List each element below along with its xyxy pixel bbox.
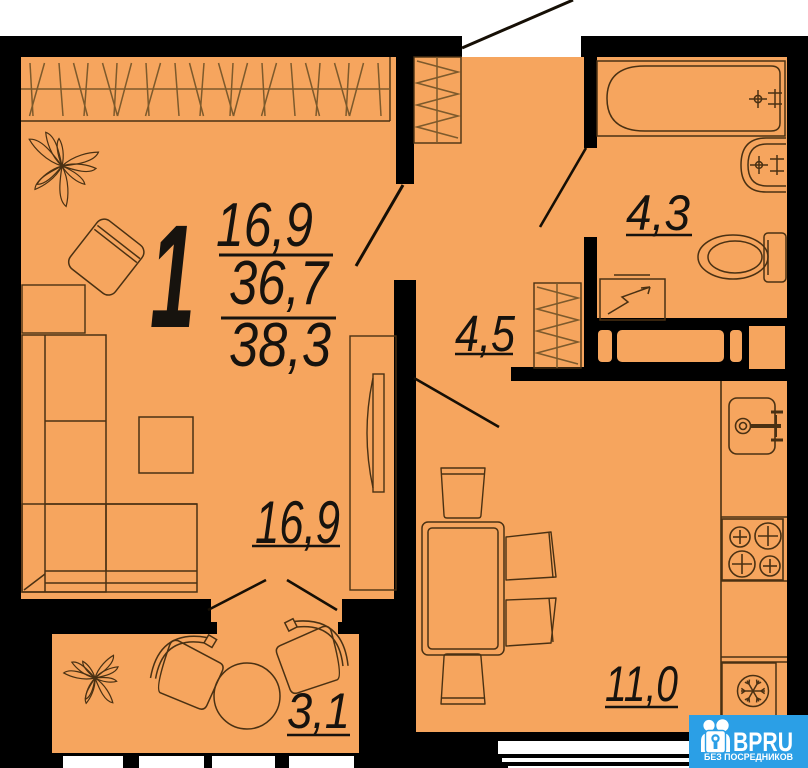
svg-text:3,1: 3,1 bbox=[287, 683, 350, 739]
svg-text:11,0: 11,0 bbox=[605, 656, 678, 712]
svg-text:1: 1 bbox=[150, 195, 195, 359]
svg-text:БЕЗ ПОСРЕДНИКОВ: БЕЗ ПОСРЕДНИКОВ bbox=[704, 752, 793, 762]
svg-text:38,3: 38,3 bbox=[229, 311, 331, 380]
svg-text:4,3: 4,3 bbox=[626, 185, 690, 241]
svg-text:36,7: 36,7 bbox=[229, 249, 330, 318]
